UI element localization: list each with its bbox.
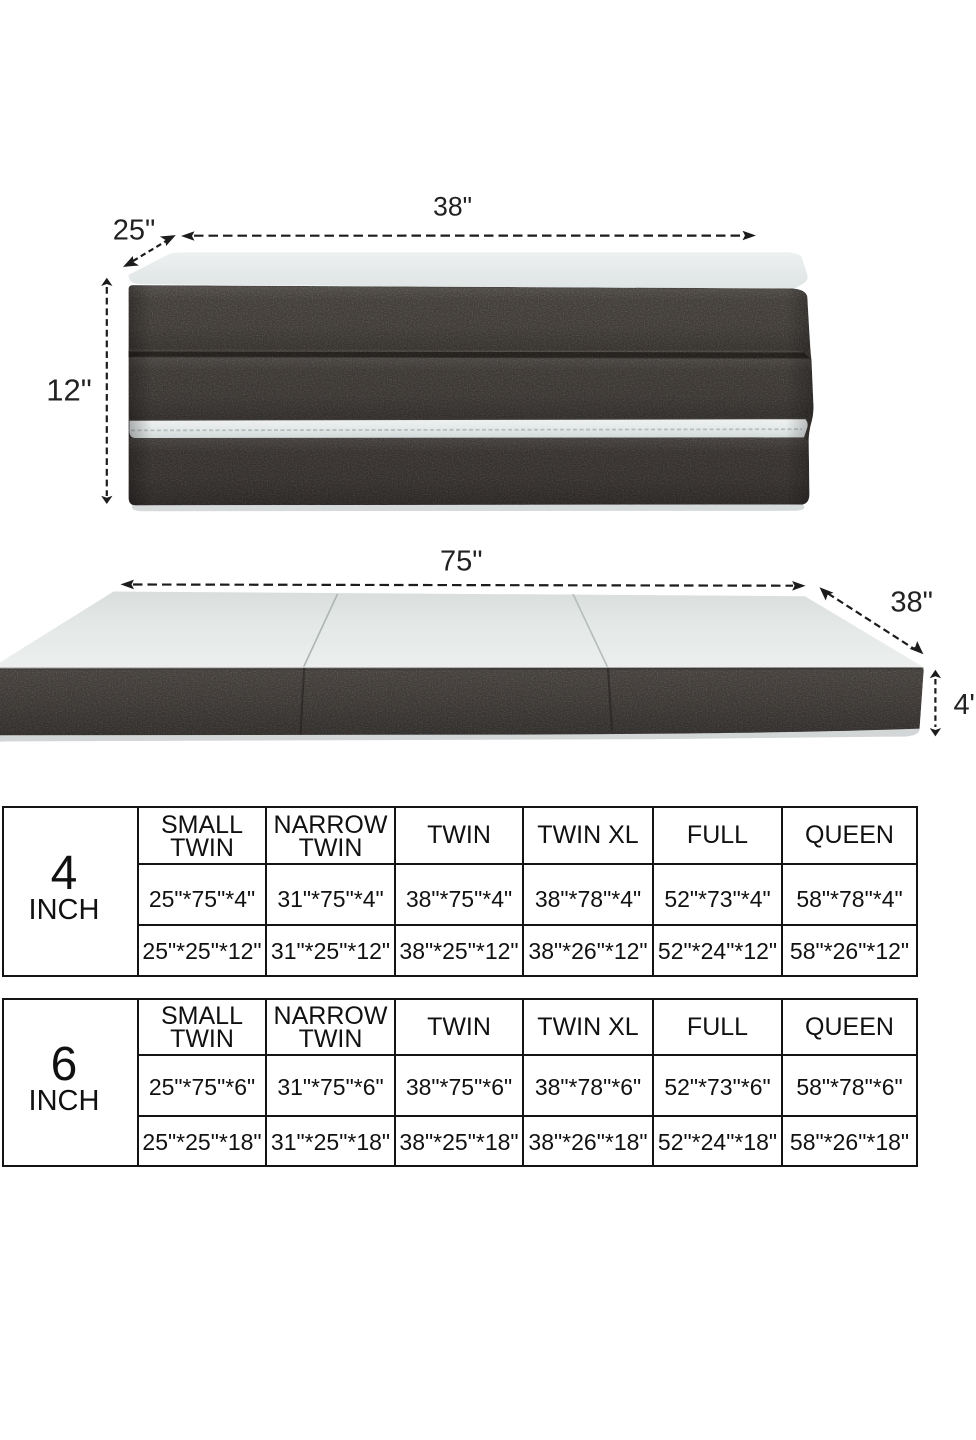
svg-text:12": 12"	[46, 373, 92, 408]
svg-text:38": 38"	[433, 191, 472, 221]
svg-text:25": 25"	[113, 215, 156, 247]
svg-text:4": 4"	[954, 689, 976, 721]
svg-text:75": 75"	[440, 546, 483, 578]
svg-text:38": 38"	[890, 587, 933, 619]
